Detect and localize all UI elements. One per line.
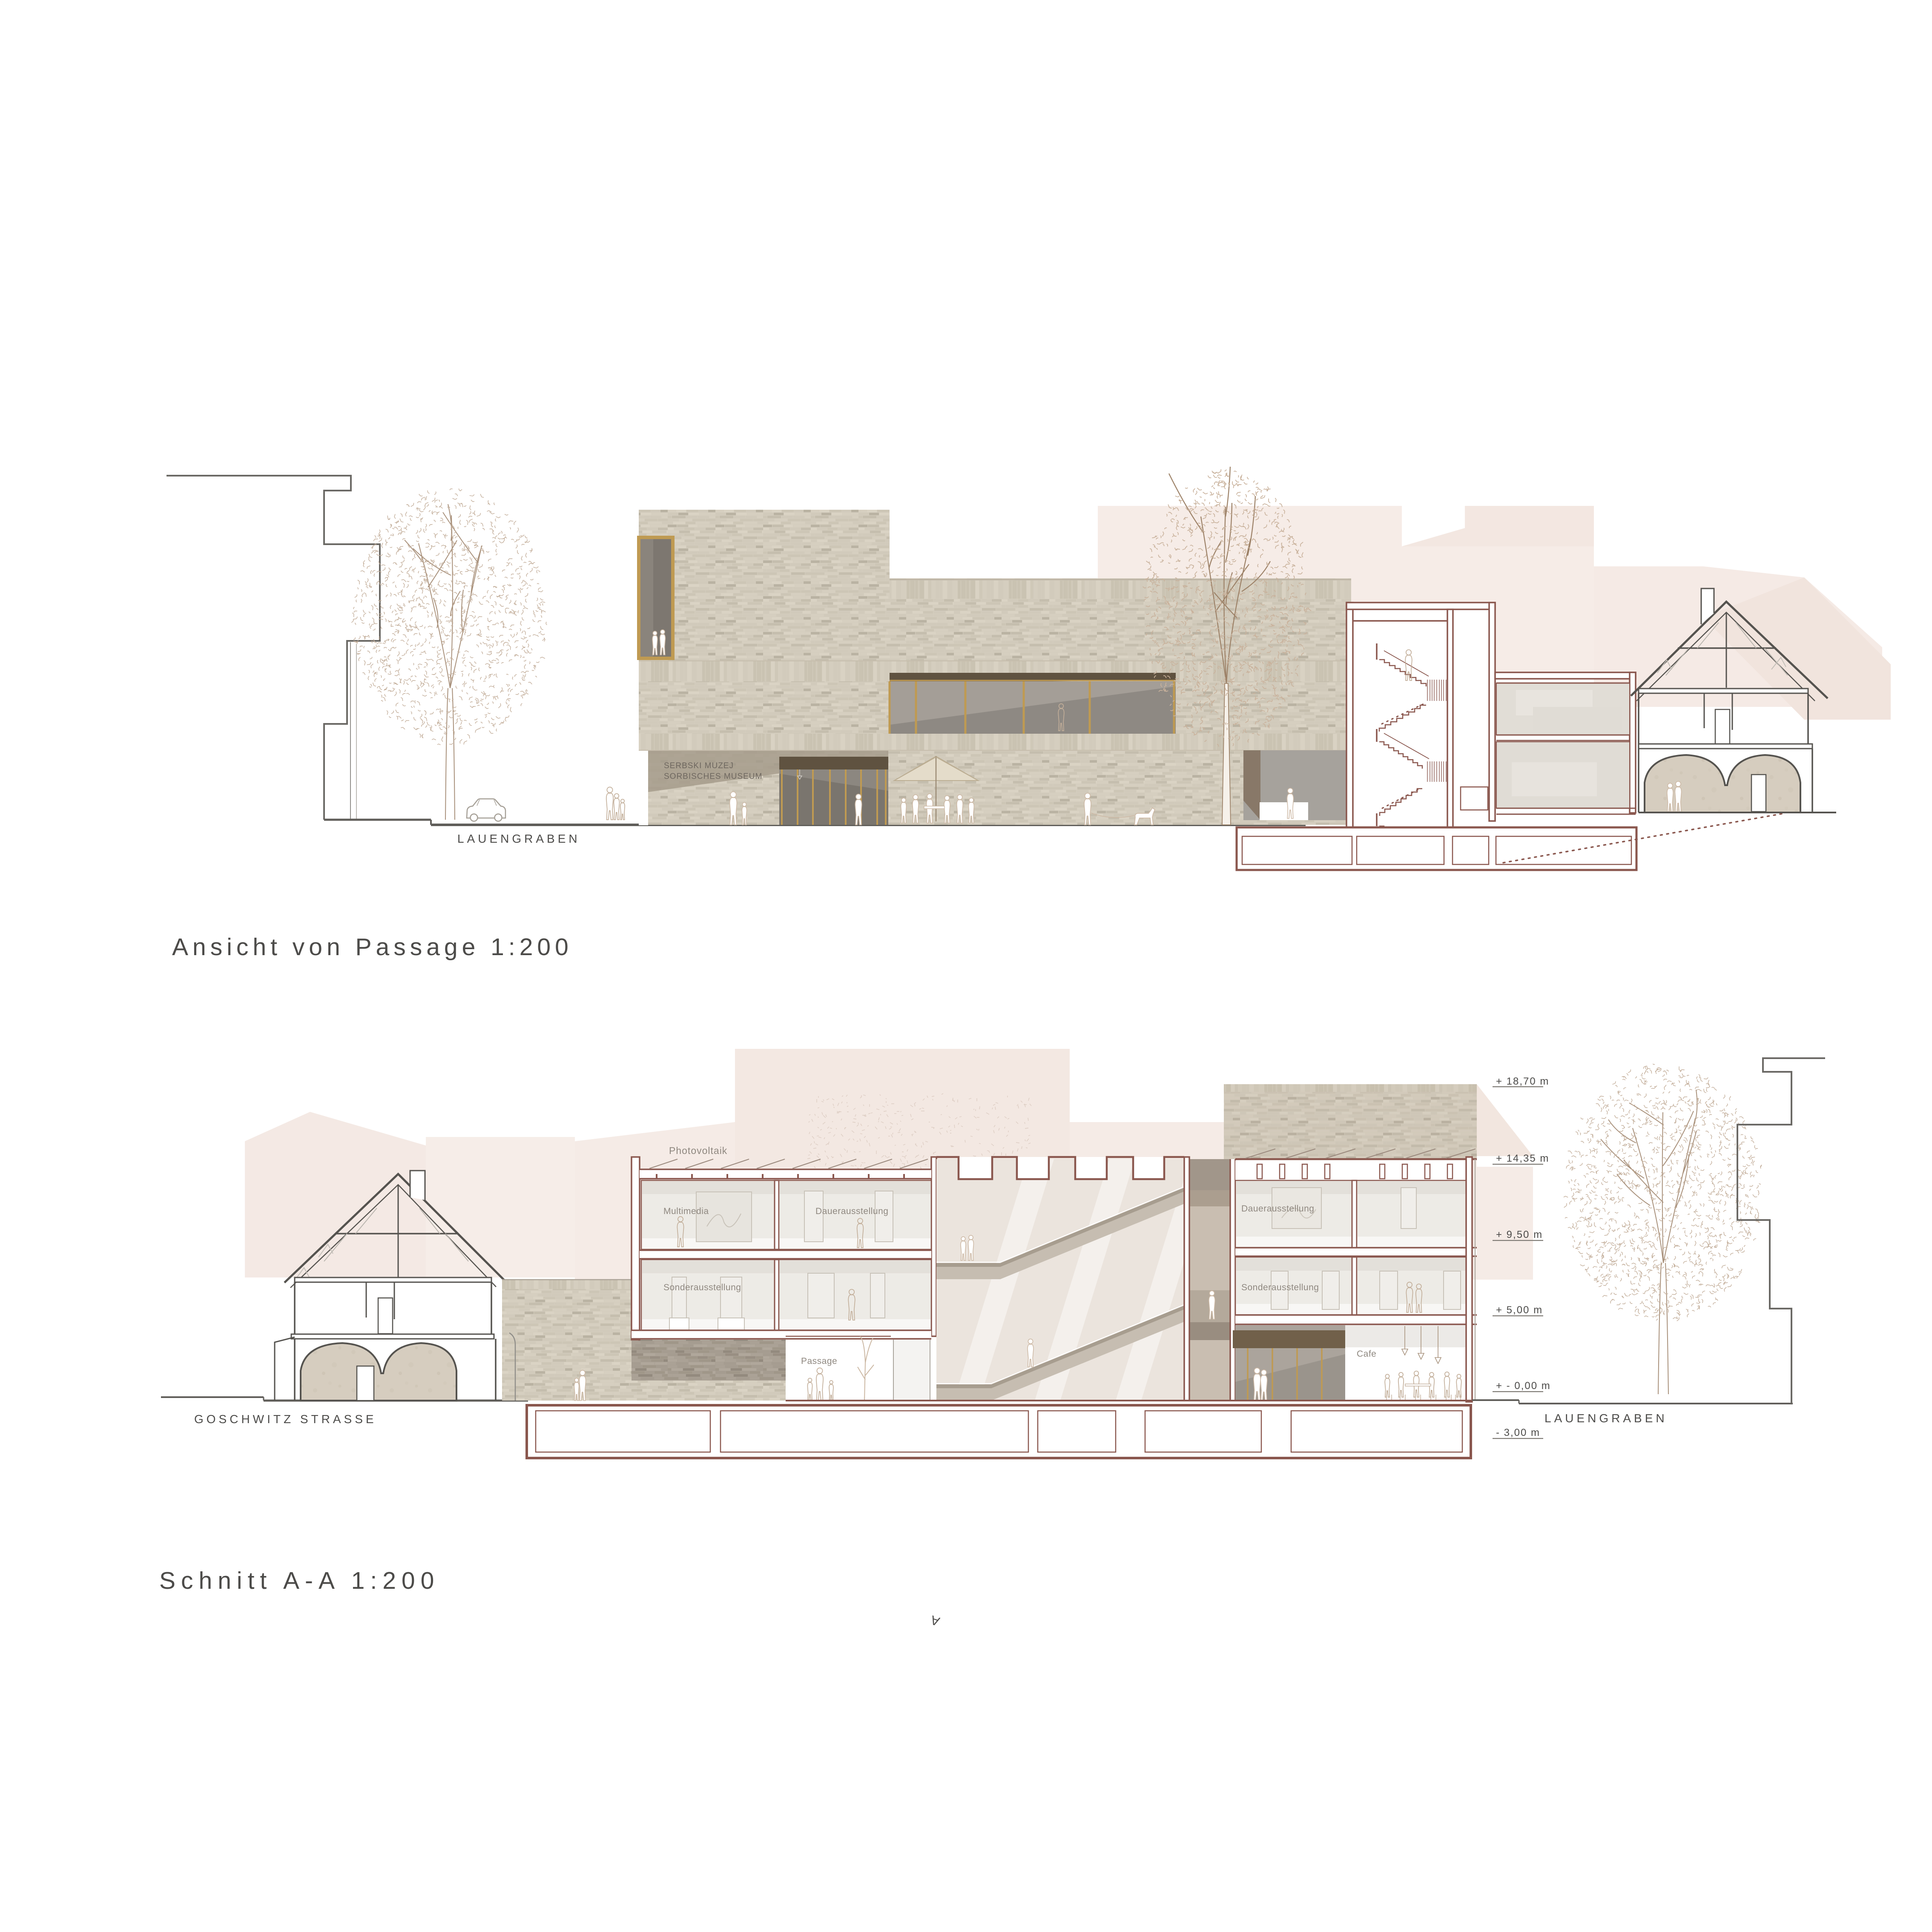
svg-text:SORBISCHES MUSEUM: SORBISCHES MUSEUM [664,772,762,781]
svg-text:LAUENGRABEN: LAUENGRABEN [1544,1412,1668,1425]
svg-text:Ansicht von Passage 1:200: Ansicht von Passage 1:200 [172,933,573,961]
svg-text:Cafe: Cafe [1357,1349,1376,1359]
svg-text:Dauerausstellung: Dauerausstellung [1241,1204,1314,1214]
svg-text:+ 5,00 m: + 5,00 m [1496,1304,1543,1316]
svg-text:GOSCHWITZ STRASSE: GOSCHWITZ STRASSE [194,1412,377,1426]
svg-text:Sonderausstellung: Sonderausstellung [663,1283,741,1292]
svg-text:SERBSKI MUZEJ: SERBSKI MUZEJ [664,761,734,770]
svg-text:Passage: Passage [801,1356,837,1366]
svg-text:- 3,00 m: - 3,00 m [1496,1427,1540,1438]
svg-text:+ 9,50 m: + 9,50 m [1496,1229,1543,1240]
svg-text:Dauerausstellung: Dauerausstellung [815,1206,888,1216]
svg-text:LAUENGRABEN: LAUENGRABEN [457,832,580,845]
svg-text:+ 18,70 m: + 18,70 m [1496,1076,1549,1087]
svg-text:Schnitt A-A 1:200: Schnitt A-A 1:200 [159,1567,439,1594]
svg-text:Sonderausstellung: Sonderausstellung [1241,1283,1319,1292]
svg-text:Photovoltaik: Photovoltaik [669,1145,727,1156]
svg-text:+ - 0,00 m: + - 0,00 m [1496,1380,1551,1392]
svg-text:+ 14,35 m: + 14,35 m [1496,1153,1549,1164]
svg-text:Multimedia: Multimedia [663,1206,709,1216]
